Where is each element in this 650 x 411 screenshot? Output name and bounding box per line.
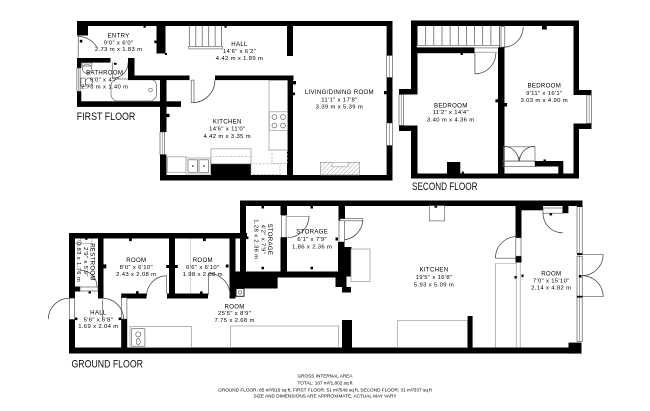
svg-text:3.39 m x 5.39 m: 3.39 m x 5.39 m: [316, 105, 364, 111]
svg-text:9'0" x 6'0": 9'0" x 6'0": [104, 40, 134, 46]
svg-text:4'2" x 7'9": 4'2" x 7'9": [259, 225, 265, 255]
svg-text:TOTAL: 167 m²/1,802 sq ft: TOTAL: 167 m²/1,802 sq ft: [297, 381, 353, 386]
svg-text:14'6" x 11'0": 14'6" x 11'0": [209, 127, 245, 133]
svg-text:0.83 x 1.76 m: 0.83 x 1.76 m: [75, 242, 81, 282]
svg-text:GROUND FLOOR: 85 m²/916 sq ft,: GROUND FLOOR: 85 m²/916 sq ft, FIRST FLO…: [218, 388, 432, 393]
svg-text:HALL: HALL: [231, 41, 248, 48]
svg-text:11'2" x 14'4": 11'2" x 14'4": [433, 110, 469, 116]
svg-text:ROOM: ROOM: [126, 257, 146, 264]
svg-text:GROSS INTERNAL AREA: GROSS INTERNAL AREA: [297, 374, 353, 379]
svg-text:2.73 m x 1.40 m: 2.73 m x 1.40 m: [81, 84, 129, 90]
svg-text:KITCHEN: KITCHEN: [420, 267, 449, 274]
svg-text:KITCHEN: KITCHEN: [213, 119, 242, 126]
svg-text:6'1" x 7'9": 6'1" x 7'9": [297, 237, 327, 243]
svg-text:GROUND FLOOR: GROUND FLOOR: [72, 359, 144, 371]
svg-text:4.42 m x 1.89 m: 4.42 m x 1.89 m: [216, 56, 264, 62]
svg-text:5.93 x 5.09 m: 5.93 x 5.09 m: [414, 282, 454, 288]
svg-text:3.03 m x 4.90 m: 3.03 m x 4.90 m: [521, 98, 569, 104]
svg-text:HALL: HALL: [90, 310, 107, 317]
svg-text:ROOM: ROOM: [225, 303, 245, 310]
svg-text:SECOND FLOOR: SECOND FLOOR: [412, 181, 478, 193]
svg-text:ENTRY: ENTRY: [108, 33, 130, 40]
svg-text:5'6" x 6'8": 5'6" x 6'8": [84, 317, 114, 323]
svg-text:FIRST FLOOR: FIRST FLOOR: [77, 111, 136, 123]
svg-text:2.73 m x 1.83 m: 2.73 m x 1.83 m: [95, 47, 143, 53]
svg-text:1.28 x 2.36 m: 1.28 x 2.36 m: [253, 219, 259, 259]
svg-text:1.98 x 2.08 m: 1.98 x 2.08 m: [183, 272, 223, 278]
svg-text:9'0" x 4'7": 9'0" x 4'7": [90, 77, 120, 83]
svg-text:SIZE AND DIMENSIONS ARE APPROX: SIZE AND DIMENSIONS ARE APPROXIMATE, ACT…: [254, 394, 398, 399]
svg-text:BATHROOM: BATHROOM: [86, 69, 123, 76]
svg-text:3.40 m x 4.36 m: 3.40 m x 4.36 m: [427, 117, 475, 123]
svg-text:14'6" x 6'2": 14'6" x 6'2": [223, 49, 256, 55]
svg-text:4.42 m x 3.35 m: 4.42 m x 3.35 m: [204, 134, 252, 140]
svg-text:STORAGE: STORAGE: [266, 224, 273, 256]
svg-text:7'0" x 15'10": 7'0" x 15'10": [533, 278, 570, 284]
svg-text:11'1" x 17'8": 11'1" x 17'8": [321, 97, 357, 103]
svg-text:1.69 x 2.04 m: 1.69 x 2.04 m: [78, 324, 118, 330]
svg-text:BEDROOM: BEDROOM: [434, 102, 468, 109]
svg-text:2'9" x 5'9": 2'9" x 5'9": [82, 247, 88, 277]
svg-text:2.43 x 2.08 m: 2.43 x 2.08 m: [116, 272, 156, 278]
svg-text:19'5" x 16'8": 19'5" x 16'8": [416, 275, 453, 281]
svg-text:2.14 x 4.82 m: 2.14 x 4.82 m: [531, 285, 571, 291]
svg-text:7.75 x 2.68 m: 7.75 x 2.68 m: [214, 318, 254, 324]
svg-text:ROOM: ROOM: [541, 270, 561, 277]
svg-text:LIVING/DINING ROOM: LIVING/DINING ROOM: [305, 89, 374, 96]
svg-text:RESTROOM: RESTROOM: [89, 243, 96, 281]
svg-text:1.86 x 2.36 m: 1.86 x 2.36 m: [292, 244, 332, 250]
svg-text:25'5" x 8'9": 25'5" x 8'9": [218, 311, 251, 317]
svg-text:ROOM: ROOM: [193, 257, 213, 264]
svg-text:STORAGE: STORAGE: [296, 228, 328, 235]
svg-text:BEDROOM: BEDROOM: [528, 83, 562, 90]
svg-text:8'0" x 6'10": 8'0" x 6'10": [120, 265, 153, 271]
svg-text:9'11" x 16'1": 9'11" x 16'1": [526, 91, 562, 97]
svg-text:6'6" x 6'10": 6'6" x 6'10": [186, 265, 219, 271]
